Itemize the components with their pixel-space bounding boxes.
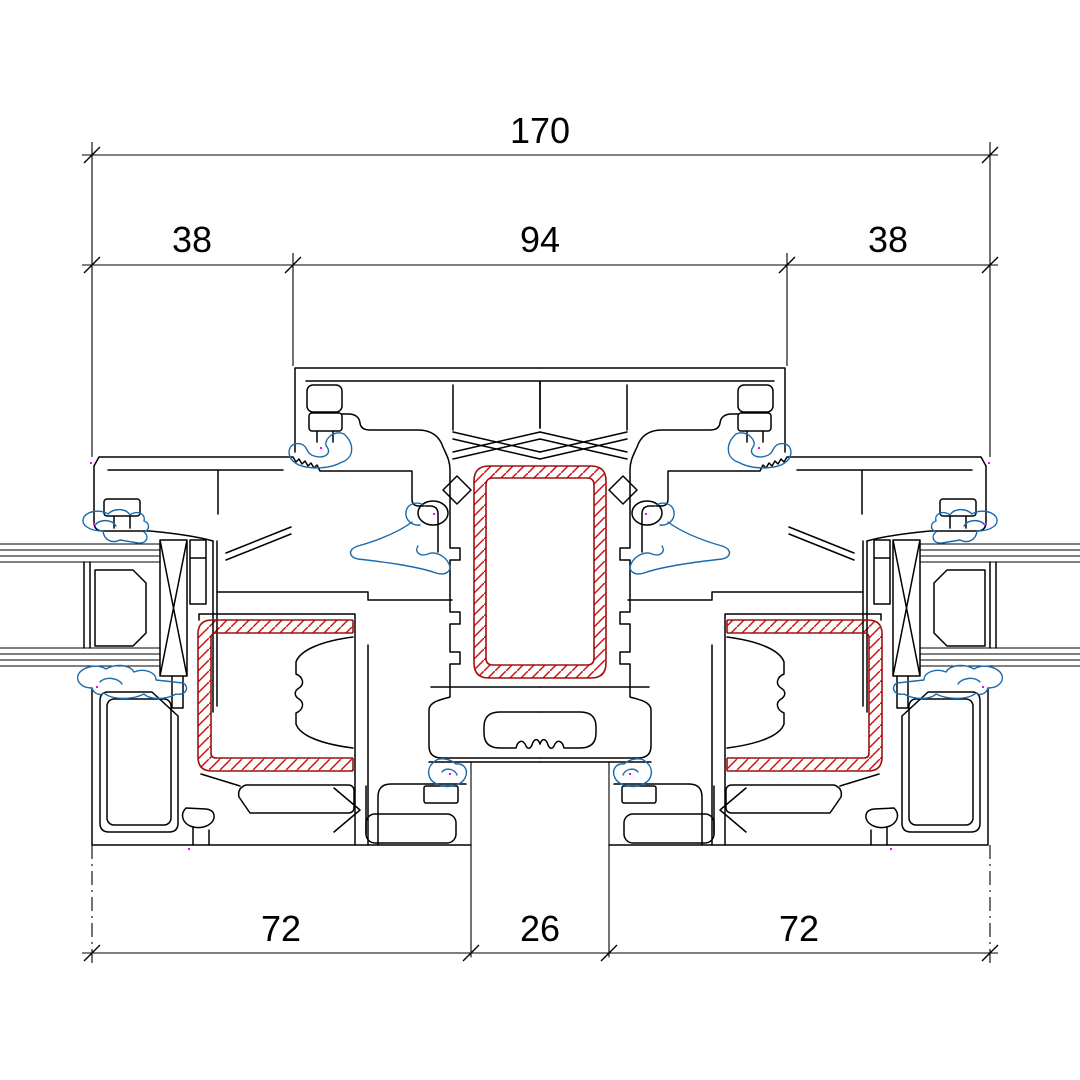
gasket-sash-outer	[83, 510, 149, 543]
glass-spacer	[84, 562, 146, 648]
steel-center-fill	[474, 466, 606, 678]
sash-lower-chamber-upper	[424, 786, 458, 803]
bead-clip	[183, 808, 215, 845]
steel-left-sash-fill	[198, 620, 353, 771]
sash-cavity-floor	[217, 592, 452, 600]
sash-inner-lines	[108, 470, 291, 560]
mullion-cap-diagonals	[453, 432, 540, 459]
glass-pane-lines	[0, 544, 160, 666]
mullion-cap-chamber	[307, 385, 342, 412]
glazing-bead	[100, 692, 178, 832]
glazing-bead-inner	[107, 699, 171, 825]
dimension-layer: 170 38 94 38 72 26 72	[82, 110, 998, 963]
dim-top-left-label: 38	[172, 219, 212, 260]
dim-bottom-right-label: 72	[779, 908, 819, 949]
profile-left-half	[0, 368, 540, 957]
dimension-ticks	[84, 147, 998, 961]
steel-sash-outline	[198, 620, 353, 771]
steel-reinforcement-fills	[198, 466, 882, 771]
sash-lower-chamber-inner	[366, 814, 456, 843]
extension-lines-upper	[92, 142, 990, 457]
gasket-mullion-bottom	[429, 759, 467, 787]
mullion-diamond	[443, 476, 471, 504]
mullion-cap	[295, 368, 540, 452]
glazing-bracket	[190, 540, 206, 604]
drawing-canvas: 170 38 94 38 72 26 72	[0, 0, 1080, 1080]
sash-steel-chamber-walls	[199, 614, 368, 845]
mullion-foot	[309, 413, 342, 431]
gasket-mullion-foot	[289, 433, 352, 468]
mullion-bowtie-chamber	[484, 712, 540, 748]
dim-overall-width-label: 170	[510, 110, 570, 151]
window-profile-section-drawing: 170 38 94 38 72 26 72	[0, 0, 1080, 1080]
steel-right-sash-fill	[727, 620, 882, 771]
sash-steel-tongue	[295, 637, 353, 748]
sash-bottom-chambers	[201, 774, 366, 834]
dim-top-right-label: 38	[868, 219, 908, 260]
profile-right-half	[540, 368, 1080, 957]
dim-top-center-label: 94	[520, 219, 560, 260]
dim-bottom-left-label: 72	[261, 908, 301, 949]
dimension-lines	[82, 155, 998, 953]
gasket-glass-inner	[78, 665, 187, 698]
dim-bottom-center-label: 26	[520, 908, 560, 949]
